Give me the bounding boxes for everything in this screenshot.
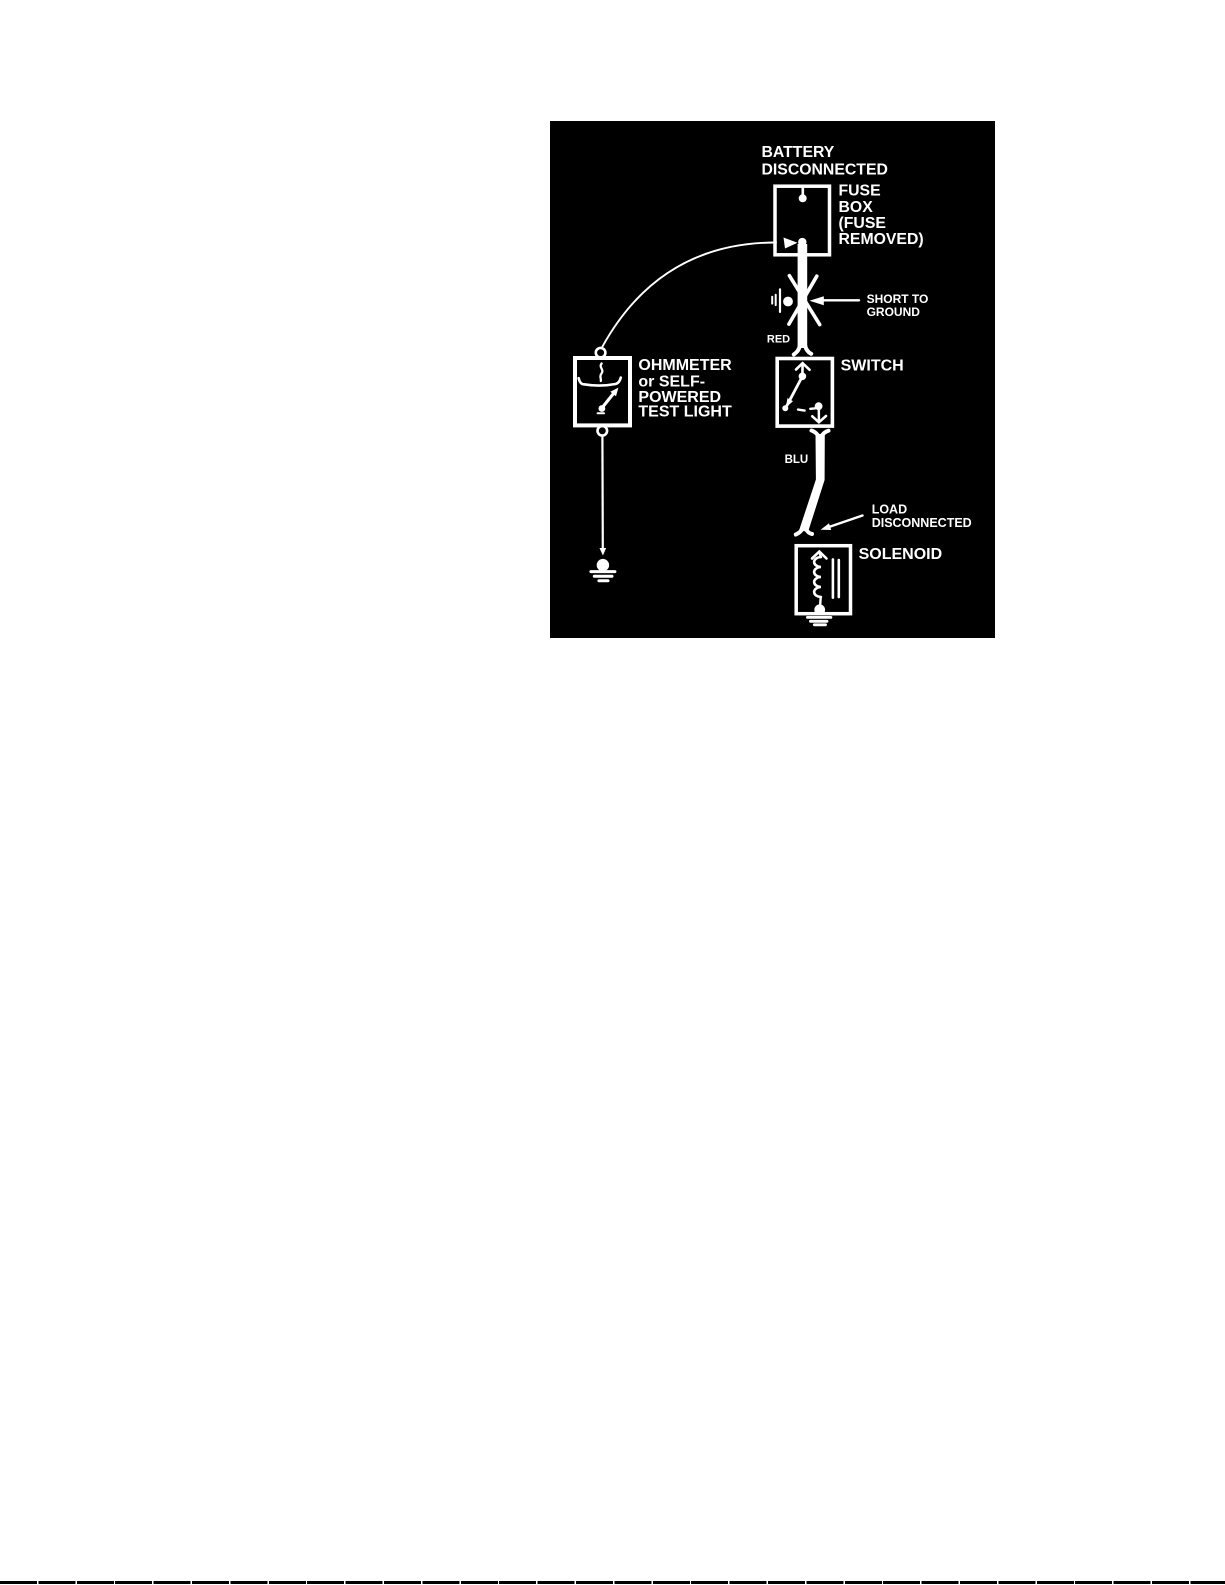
svg-text:LOAD: LOAD: [872, 503, 907, 517]
svg-text:DISCONNECTED: DISCONNECTED: [872, 516, 972, 530]
svg-text:REMOVED): REMOVED): [839, 231, 924, 248]
svg-text:BLU: BLU: [785, 454, 809, 466]
svg-text:OHMMETER: OHMMETER: [638, 357, 732, 374]
svg-text:FUSE: FUSE: [839, 183, 881, 200]
svg-text:GROUND: GROUND: [867, 305, 921, 319]
svg-text:TEST LIGHT: TEST LIGHT: [638, 404, 732, 421]
svg-text:(FUSE: (FUSE: [839, 215, 886, 232]
svg-text:RED: RED: [767, 333, 790, 345]
svg-text:SWITCH: SWITCH: [841, 358, 904, 375]
svg-text:DISCONNECTED: DISCONNECTED: [762, 162, 888, 179]
svg-text:BOX: BOX: [839, 199, 874, 216]
svg-text:or SELF-: or SELF-: [638, 373, 705, 390]
svg-text:SOLENOID: SOLENOID: [859, 546, 943, 563]
svg-text:BATTERY: BATTERY: [762, 144, 835, 161]
